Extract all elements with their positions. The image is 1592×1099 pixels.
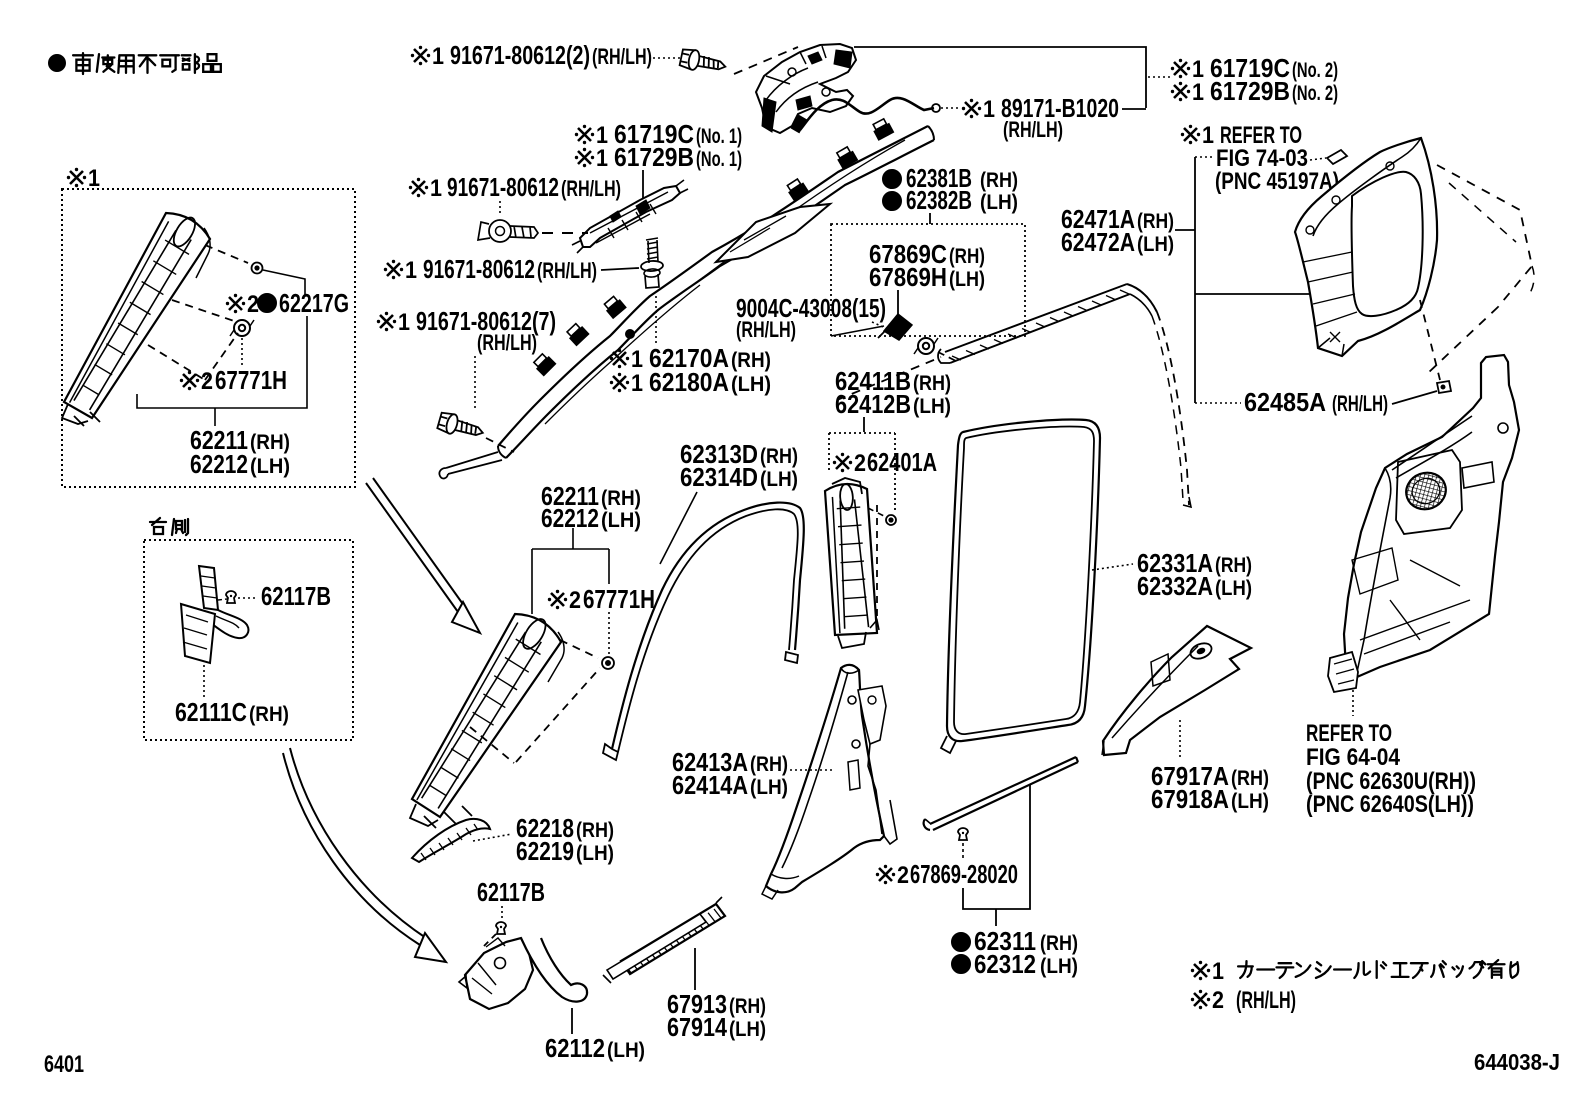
svg-text:(LH): (LH) <box>913 395 951 418</box>
svg-text:1: 1 <box>1202 122 1214 149</box>
svg-text:(RH): (RH) <box>731 349 771 372</box>
svg-text:(RH/LH): (RH/LH) <box>736 317 796 342</box>
svg-text:(RH): (RH) <box>1215 554 1252 577</box>
svg-text:REFER TO: REFER TO <box>1306 720 1392 747</box>
svg-text:(RH/LH): (RH/LH) <box>561 176 621 201</box>
svg-text:62332A: 62332A <box>1137 571 1213 601</box>
svg-text:(RH): (RH) <box>750 753 788 776</box>
svg-text:(LH): (LH) <box>949 268 985 291</box>
svg-text:2: 2 <box>897 862 909 889</box>
svg-text:2: 2 <box>854 450 866 477</box>
svg-text:(RH/LH): (RH/LH) <box>537 258 597 283</box>
svg-text:67869H: 67869H <box>869 262 947 292</box>
svg-text:61729B: 61729B <box>1210 76 1290 106</box>
svg-text:62485A: 62485A <box>1244 387 1326 417</box>
svg-text:1: 1 <box>88 165 100 192</box>
svg-text:91671-80612(2): 91671-80612(2) <box>450 40 590 70</box>
svg-text:1: 1 <box>631 370 643 397</box>
svg-text:67771H: 67771H <box>215 365 287 395</box>
svg-text:(RH): (RH) <box>1231 767 1269 790</box>
svg-text:62180A: 62180A <box>649 367 729 397</box>
svg-text:(RH/LH): (RH/LH) <box>1236 987 1296 1014</box>
svg-text:(No. 2): (No. 2) <box>1292 59 1338 82</box>
svg-text:1: 1 <box>631 346 643 373</box>
svg-text:(RH): (RH) <box>980 169 1018 192</box>
svg-text:2: 2 <box>569 587 581 614</box>
svg-text:(No. 1): (No. 1) <box>696 125 742 148</box>
svg-text:62472A: 62472A <box>1061 227 1135 257</box>
svg-text:62212: 62212 <box>190 449 248 479</box>
svg-text:(RH/LH): (RH/LH) <box>477 330 537 355</box>
svg-text:1: 1 <box>432 43 444 70</box>
svg-text:2: 2 <box>201 368 213 395</box>
svg-text:67918A: 67918A <box>1151 784 1229 814</box>
svg-text:(LH): (LH) <box>980 191 1018 214</box>
svg-text:62401A: 62401A <box>867 447 937 477</box>
svg-text:67914: 67914 <box>667 1012 727 1042</box>
svg-text:62219: 62219 <box>516 836 574 866</box>
svg-text:(LH): (LH) <box>760 468 798 491</box>
svg-text:1: 1 <box>430 175 442 202</box>
svg-text:(LH): (LH) <box>250 455 290 478</box>
svg-text:(RH): (RH) <box>1040 932 1078 955</box>
svg-text:2: 2 <box>1212 987 1224 1014</box>
svg-text:(RH): (RH) <box>913 372 951 395</box>
svg-text:(LH): (LH) <box>1040 955 1078 978</box>
svg-text:91671-80612: 91671-80612 <box>447 172 559 202</box>
svg-text:(LH): (LH) <box>731 373 771 396</box>
svg-text:(RH): (RH) <box>250 431 290 454</box>
svg-text:1: 1 <box>983 96 995 123</box>
svg-text:1: 1 <box>1212 958 1224 985</box>
svg-text:1: 1 <box>398 309 410 336</box>
svg-text:(RH): (RH) <box>729 995 766 1018</box>
svg-text:(LH): (LH) <box>729 1018 766 1041</box>
svg-text:(RH): (RH) <box>760 445 798 468</box>
svg-text:(RH/LH): (RH/LH) <box>592 44 652 69</box>
svg-text:62412B: 62412B <box>835 389 911 419</box>
svg-text:(RH/LH): (RH/LH) <box>1003 117 1063 142</box>
svg-text:(PNC 62640S(LH)): (PNC 62640S(LH)) <box>1306 791 1474 818</box>
svg-text:(LH): (LH) <box>1215 577 1252 600</box>
svg-text:6401: 6401 <box>44 1051 84 1078</box>
svg-text:1: 1 <box>596 145 608 172</box>
svg-text:62217G: 62217G <box>279 288 349 318</box>
svg-text:(RH): (RH) <box>249 703 289 726</box>
svg-text:67771H: 67771H <box>583 584 655 614</box>
svg-text:62414A: 62414A <box>672 770 748 800</box>
svg-text:61729B: 61729B <box>614 142 694 172</box>
svg-text:(LH): (LH) <box>1137 233 1174 256</box>
svg-text:(LH): (LH) <box>750 776 788 799</box>
svg-text:62212: 62212 <box>541 503 599 533</box>
svg-text:1: 1 <box>1192 79 1204 106</box>
svg-text:62312: 62312 <box>974 949 1036 979</box>
svg-text:(LH): (LH) <box>1231 790 1269 813</box>
svg-text:1: 1 <box>405 257 417 284</box>
svg-text:62314D: 62314D <box>680 462 758 492</box>
svg-text:(No. 1): (No. 1) <box>696 148 742 171</box>
svg-text:(RH): (RH) <box>949 245 985 268</box>
svg-text:(LH): (LH) <box>601 509 641 532</box>
svg-text:(LH): (LH) <box>607 1039 645 1062</box>
svg-text:(PNC 45197A): (PNC 45197A) <box>1215 168 1339 195</box>
svg-text:644038-J: 644038-J <box>1474 1049 1560 1075</box>
svg-text:(LH): (LH) <box>576 842 614 865</box>
svg-text:62382B: 62382B <box>906 185 972 215</box>
svg-text:62112: 62112 <box>545 1033 605 1063</box>
svg-text:(RH/LH): (RH/LH) <box>1332 391 1388 416</box>
svg-text:62117B: 62117B <box>477 877 545 907</box>
svg-text:(RH): (RH) <box>1137 210 1174 233</box>
svg-text:62117B: 62117B <box>261 581 331 611</box>
svg-text:FIG 64-04: FIG 64-04 <box>1306 744 1401 771</box>
svg-text:91671-80612: 91671-80612 <box>423 254 535 284</box>
svg-text:67869-28020: 67869-28020 <box>910 859 1018 889</box>
svg-text:(RH): (RH) <box>601 487 641 510</box>
svg-text:(No. 2): (No. 2) <box>1292 82 1338 105</box>
svg-text:(RH): (RH) <box>576 819 614 842</box>
svg-text:62111C: 62111C <box>175 697 247 727</box>
